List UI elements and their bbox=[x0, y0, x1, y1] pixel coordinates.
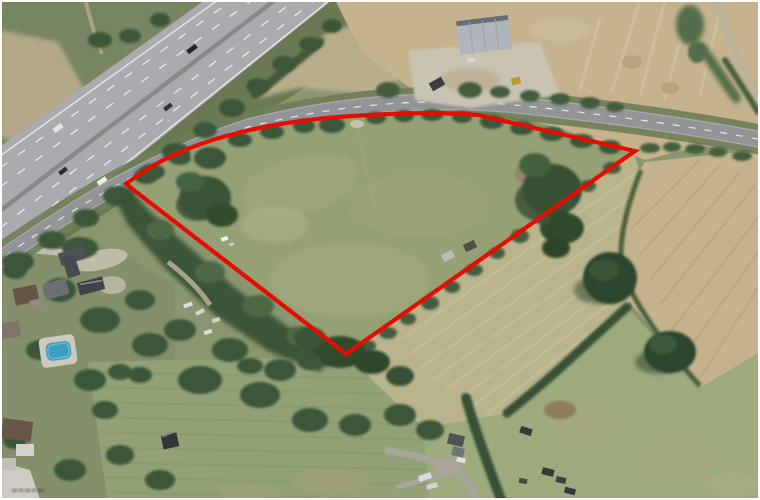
aerial-photo-frame: Aerial photograph of a roughly triangula… bbox=[0, 0, 760, 500]
photo-grain bbox=[0, 0, 760, 500]
watermark-smudge bbox=[12, 489, 44, 492]
aerial-photo: Aerial photograph of a roughly triangula… bbox=[0, 0, 760, 500]
